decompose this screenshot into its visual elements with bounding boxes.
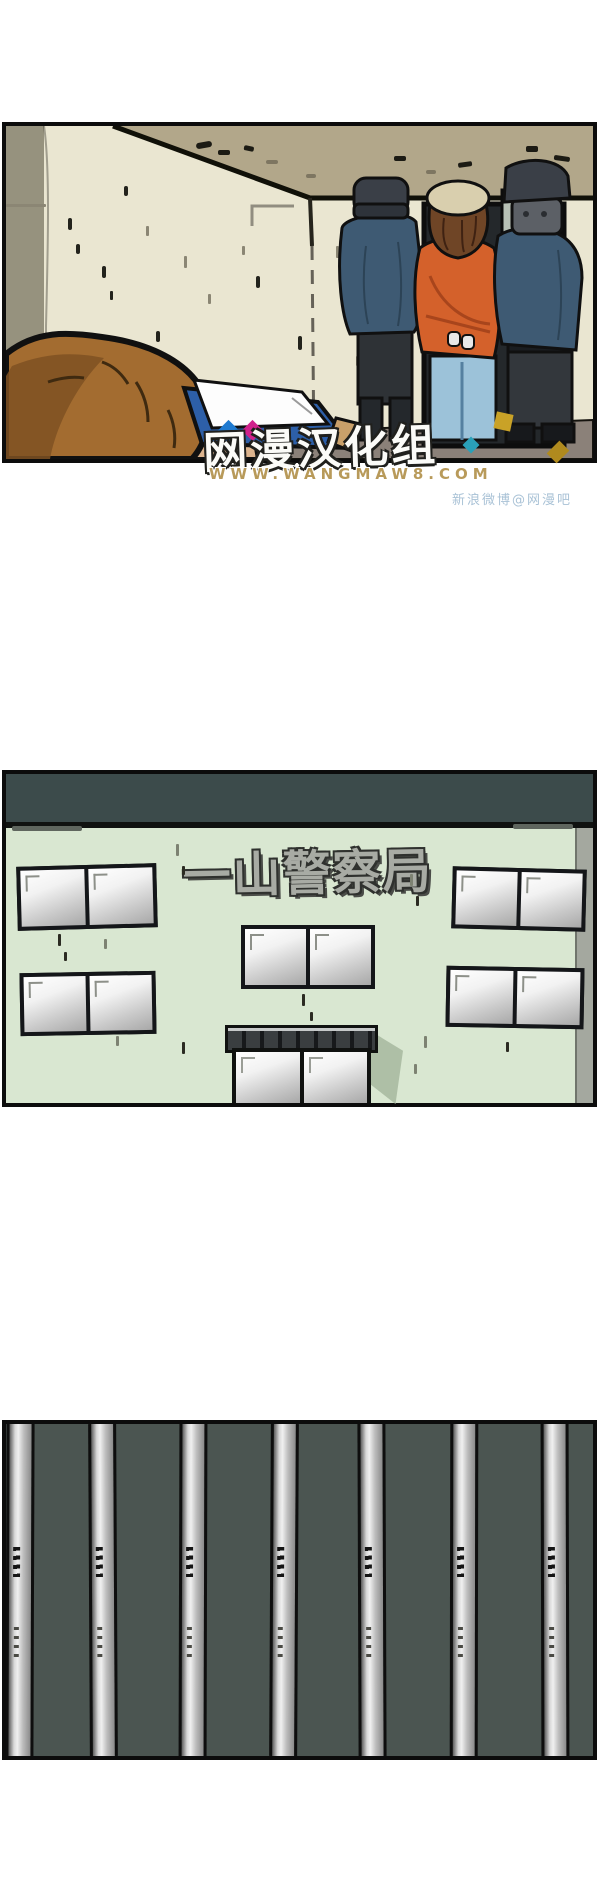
window-bottom-right <box>445 966 584 1029</box>
roof-ledge-right <box>513 824 573 829</box>
speckle-mark <box>410 874 413 886</box>
panel-police-station: 一山警察局 <box>2 770 597 1107</box>
jail-bar <box>179 1424 208 1756</box>
entrance-door <box>232 1048 371 1103</box>
watermark-teal-diamond <box>463 437 480 454</box>
speckle-mark <box>104 939 107 949</box>
jail-bar <box>5 1424 34 1756</box>
arrest-scene-drawing <box>6 126 593 459</box>
speckle-mark <box>182 1042 185 1054</box>
jail-bar <box>88 1424 118 1756</box>
speckle-mark <box>176 844 179 856</box>
jail-bar <box>357 1424 386 1756</box>
speckle-mark <box>414 1064 417 1074</box>
window-top-right <box>451 866 587 931</box>
speckle-mark <box>310 1012 313 1021</box>
speckle-mark <box>424 1036 427 1048</box>
window-bottom-left <box>19 971 156 1036</box>
speckle-mark <box>416 896 419 906</box>
jail-bar <box>450 1424 479 1756</box>
speckle-mark <box>506 1042 509 1052</box>
speckle-mark <box>58 934 61 946</box>
watermark-weibo: 新浪微博@网漫吧 <box>452 489 572 508</box>
watermark-gold-diamond <box>547 441 570 464</box>
speckle-mark <box>116 1036 119 1046</box>
speckle-mark <box>64 952 67 961</box>
sky <box>6 774 593 828</box>
watermark-gold-square <box>493 411 513 431</box>
watermark-url: WWW.WANGMAW8.COM <box>209 465 493 483</box>
window-center <box>241 925 375 989</box>
speckle-mark <box>182 866 185 875</box>
panel-jail-bars <box>2 1420 597 1760</box>
speckle-mark <box>302 994 305 1006</box>
translation-group-watermark: 网漫汉化组 WWW.WANGMAW8.COM 新浪微博@网漫吧 <box>195 413 600 513</box>
station-sign: 一山警察局 <box>181 831 432 906</box>
jail-bar <box>269 1424 299 1756</box>
jail-bar <box>541 1424 570 1756</box>
roof-ledge-left <box>12 826 82 831</box>
window-top-left <box>16 863 158 931</box>
panel-arrest-scene <box>2 122 597 463</box>
